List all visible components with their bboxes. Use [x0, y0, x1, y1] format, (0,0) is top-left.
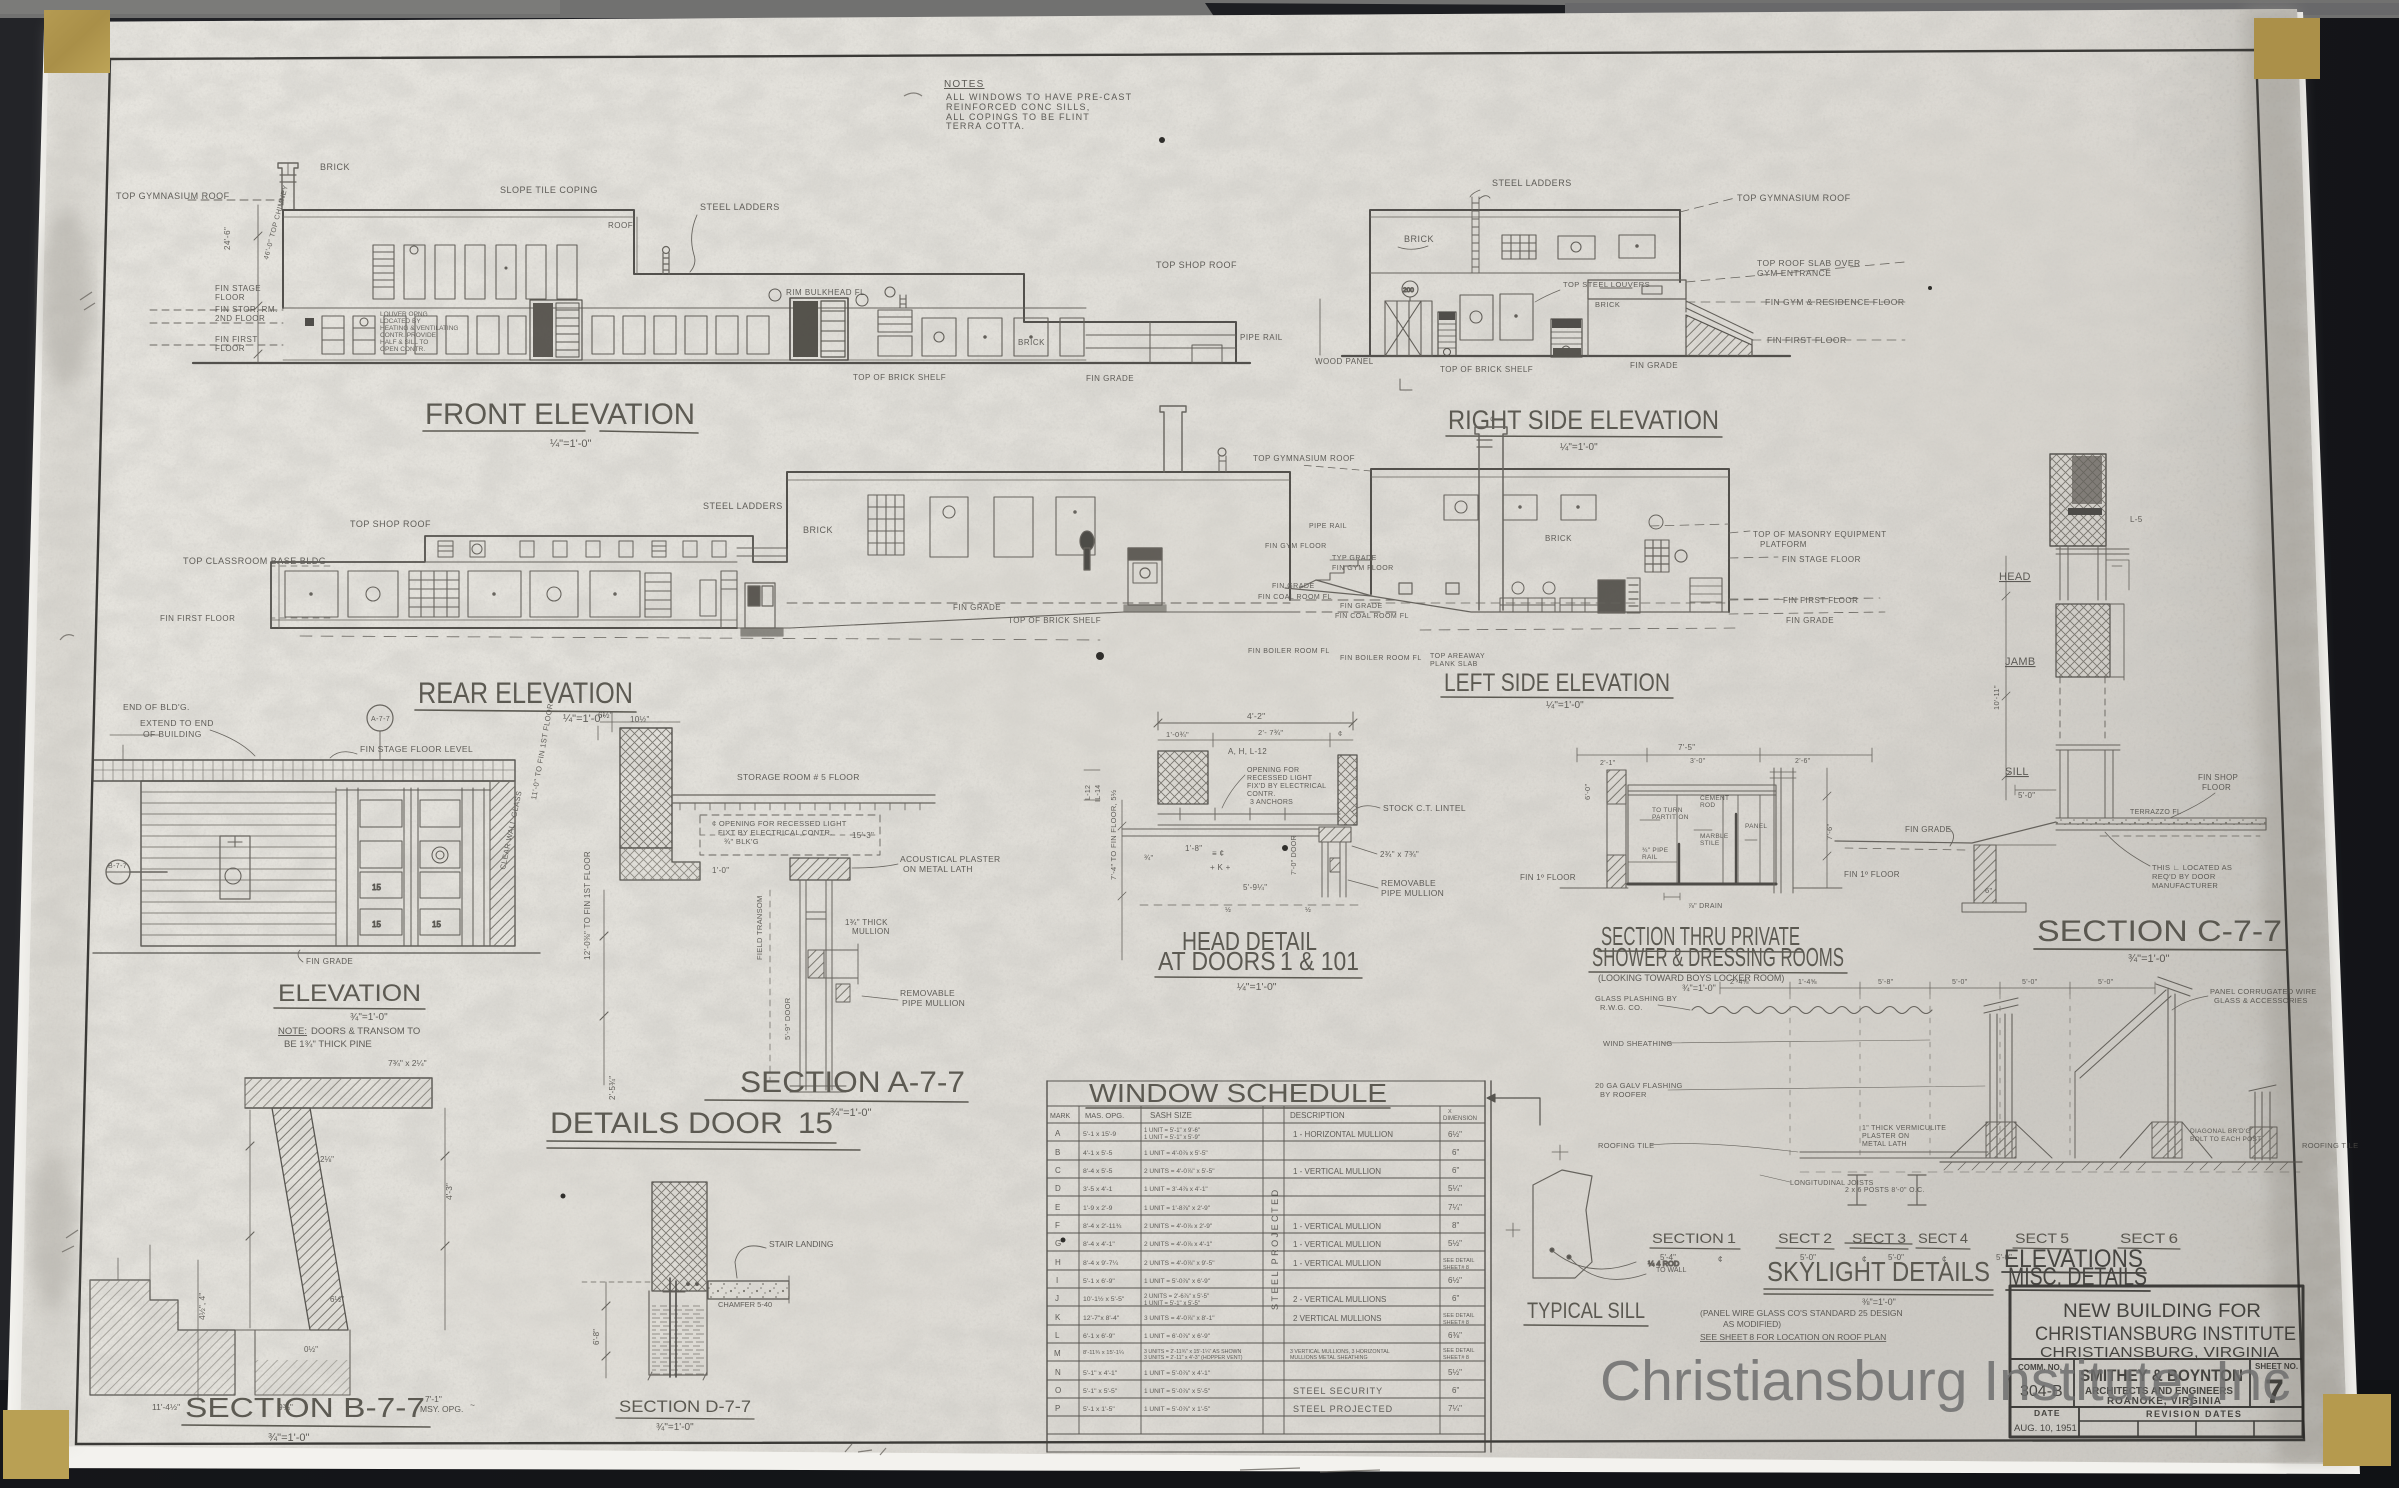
svg-text:SASH SIZE: SASH SIZE	[1150, 1111, 1192, 1120]
svg-text:ALL WINDOWS TO HAVE PRE-CAST: ALL WINDOWS TO HAVE PRE-CAST	[946, 92, 1132, 102]
svg-text:BRICK: BRICK	[803, 525, 833, 535]
svg-text:TOP GYMNASIUM ROOF: TOP GYMNASIUM ROOF	[116, 191, 230, 201]
svg-text:4½", 4": 4½", 4"	[197, 1293, 207, 1320]
svg-text:3 ANCHORS: 3 ANCHORS	[1250, 799, 1293, 806]
svg-text:L: L	[1055, 1331, 1060, 1340]
svg-text:6'-1 x 6'-9": 6'-1 x 6'-9"	[1083, 1333, 1115, 1340]
svg-text:5'-0": 5'-0"	[2018, 791, 2035, 800]
svg-text:1 - VERTICAL MULLION: 1 - VERTICAL MULLION	[1293, 1259, 1381, 1268]
svg-text:7¼": 7¼"	[1448, 1203, 1462, 1212]
svg-text:F: F	[1055, 1221, 1060, 1230]
svg-text:~: ~	[470, 1400, 475, 1410]
svg-text:200: 200	[1403, 287, 1414, 294]
svg-text:D: D	[1055, 1184, 1061, 1193]
svg-text:⅜"=1'-0": ⅜"=1'-0"	[1862, 1297, 1896, 1307]
svg-text:8'-4 x 2'-11¾: 8'-4 x 2'-11¾	[1083, 1223, 1122, 1230]
svg-text:6'-0": 6'-0"	[1583, 784, 1592, 800]
svg-text:LOCATED BY: LOCATED BY	[380, 318, 421, 325]
svg-text:FIN COAL ROOM FL: FIN COAL ROOM FL	[1335, 613, 1409, 620]
svg-text:SECT 4: SECT 4	[1918, 1230, 1968, 1246]
svg-text:2 x 6 POSTS 8'-0" O.C.: 2 x 6 POSTS 8'-0" O.C.	[1845, 1187, 1925, 1194]
svg-text:BRICK: BRICK	[320, 162, 350, 172]
svg-text:REQ'D BY DOOR: REQ'D BY DOOR	[2152, 872, 2216, 881]
svg-text:C: C	[1055, 1166, 1061, 1175]
svg-text:¾"=1'-0": ¾"=1'-0"	[1682, 983, 1716, 993]
svg-text:1 - VERTICAL MULLION: 1 - VERTICAL MULLION	[1293, 1222, 1381, 1231]
svg-text:¾" PIPE: ¾" PIPE	[1642, 847, 1669, 854]
svg-text:¾"=1'-0": ¾"=1'-0"	[350, 1012, 388, 1023]
svg-text:1'-4⅝: 1'-4⅝	[1798, 979, 1817, 986]
svg-text:6": 6"	[1452, 1294, 1459, 1303]
svg-text:8'-4 x 5'-5: 8'-4 x 5'-5	[1083, 1168, 1113, 1175]
svg-text:¾"=1'-0": ¾"=1'-0"	[656, 1422, 694, 1433]
svg-text:5½": 5½"	[1448, 1239, 1462, 1248]
svg-text:SECT 6: SECT 6	[2120, 1230, 2178, 1246]
svg-text:1 UNIT = 5'-0⅞" x 5'-5": 1 UNIT = 5'-0⅞" x 5'-5"	[1144, 1388, 1211, 1395]
svg-text:2¾" x 7¾": 2¾" x 7¾"	[1380, 850, 1419, 859]
svg-text:6": 6"	[1985, 886, 1992, 895]
svg-text:4'-1 x 5'-5: 4'-1 x 5'-5	[1083, 1150, 1113, 1157]
svg-text:2'-5¾": 2'-5¾"	[608, 1076, 617, 1100]
svg-text:12'-0⅜" TO FIN 1ST FLOOR: 12'-0⅜" TO FIN 1ST FLOOR	[583, 851, 592, 960]
svg-text:SEE DETAIL: SEE DETAIL	[1443, 1348, 1474, 1354]
svg-text:5'-9" DOOR: 5'-9" DOOR	[783, 997, 792, 1040]
svg-text:METAL LATH: METAL LATH	[1862, 1141, 1907, 1148]
svg-text:L-5: L-5	[2130, 515, 2143, 524]
svg-text:END OF BLD'G.: END OF BLD'G.	[123, 702, 190, 712]
svg-text:2 UNITS = 4'-0⅞" x 5'-5": 2 UNITS = 4'-0⅞" x 5'-5"	[1144, 1168, 1215, 1175]
svg-text:CONTR. PROVIDE: CONTR. PROVIDE	[380, 332, 437, 339]
svg-text:CHRISTIANSBURG INSTITUTE: CHRISTIANSBURG INSTITUTE	[2035, 1324, 2296, 1345]
svg-text:5'-1 x 15'-9: 5'-1 x 15'-9	[1083, 1131, 1116, 1138]
svg-text:FIN COAL ROOM FL: FIN COAL ROOM FL	[1258, 594, 1332, 601]
svg-text:¾"=1'-0": ¾"=1'-0"	[830, 1107, 872, 1119]
svg-text:RIGHT SIDE ELEVATION: RIGHT SIDE ELEVATION	[1448, 405, 1719, 435]
svg-text:TOP SHOP ROOF: TOP SHOP ROOF	[350, 519, 431, 529]
svg-text:FLOOR: FLOOR	[215, 344, 245, 353]
svg-text:STEEL SECURITY: STEEL SECURITY	[1293, 1386, 1383, 1396]
svg-text:TOP OF BRICK SHELF: TOP OF BRICK SHELF	[853, 373, 946, 382]
svg-text:TOP OF BRICK SHELF: TOP OF BRICK SHELF	[1440, 365, 1533, 374]
svg-text:8'-4 x 4'-1": 8'-4 x 4'-1"	[1083, 1241, 1115, 1248]
svg-text:BY ROOFER: BY ROOFER	[1600, 1090, 1647, 1099]
svg-text:BRICK: BRICK	[1018, 338, 1045, 347]
svg-text:PIPE RAIL: PIPE RAIL	[1309, 523, 1347, 530]
svg-text:¢: ¢	[1338, 729, 1342, 738]
svg-text:REMOVABLE: REMOVABLE	[900, 988, 955, 998]
svg-text:4'-2": 4'-2"	[1247, 711, 1265, 721]
svg-text:ON METAL LATH: ON METAL LATH	[903, 864, 973, 874]
svg-text:2 UNITS = 4'-0⅞ x 2'-9": 2 UNITS = 4'-0⅞ x 2'-9"	[1144, 1223, 1213, 1230]
svg-text:FIN STAGE: FIN STAGE	[215, 284, 261, 293]
svg-text:A: A	[1055, 1129, 1061, 1138]
svg-text:2 UNITS = 4'-0⅞ x 4'-1": 2 UNITS = 4'-0⅞ x 4'-1"	[1144, 1241, 1213, 1248]
svg-text:7'-6": 7'-6"	[1825, 824, 1834, 840]
svg-text:SHOWER & DRESSING ROOMS: SHOWER & DRESSING ROOMS	[1592, 942, 1844, 972]
svg-text:FLOOR: FLOOR	[215, 293, 245, 302]
svg-text:FIN FIRST FLOOR: FIN FIRST FLOOR	[160, 614, 235, 623]
svg-text:2ND FLOOR: 2ND FLOOR	[215, 314, 265, 323]
svg-text:AUG. 10, 1951: AUG. 10, 1951	[2014, 1423, 2077, 1434]
svg-text:STEEL LADDERS: STEEL LADDERS	[703, 501, 783, 511]
svg-text:5'-0": 5'-0"	[2098, 979, 2114, 986]
svg-text:P: P	[1055, 1404, 1060, 1413]
svg-text:STEEL PROJECTED: STEEL PROJECTED	[1293, 1404, 1393, 1414]
svg-text:M: M	[1054, 1349, 1061, 1358]
svg-text:5'-0": 5'-0"	[1952, 979, 1968, 986]
svg-text:5½": 5½"	[1448, 1368, 1462, 1377]
svg-text:TYPICAL SILL: TYPICAL SILL	[1527, 1298, 1645, 1323]
svg-text:BRICK: BRICK	[1404, 234, 1434, 244]
svg-text:6½": 6½"	[598, 711, 613, 720]
svg-text:FRONT ELEVATION: FRONT ELEVATION	[425, 398, 695, 431]
svg-text:CEMENT: CEMENT	[1700, 795, 1729, 802]
svg-text:FIN STAGE FLOOR LEVEL: FIN STAGE FLOOR LEVEL	[360, 744, 473, 754]
svg-text:7¾" x 2¼": 7¾" x 2¼"	[388, 1058, 427, 1068]
svg-text:REINFORCED CONC SILLS,: REINFORCED CONC SILLS,	[946, 102, 1090, 112]
svg-text:G: G	[1055, 1239, 1061, 1248]
svg-text:3'-5 x 4'-1: 3'-5 x 4'-1	[1083, 1186, 1113, 1193]
svg-text:SLOPE TILE COPING: SLOPE TILE COPING	[500, 185, 598, 195]
svg-text:1¾" THICK: 1¾" THICK	[845, 918, 888, 927]
svg-text:15'-3": 15'-3"	[852, 831, 874, 840]
svg-text:FIN GRADE: FIN GRADE	[1905, 825, 1951, 834]
svg-text:FIN 1º FLOOR: FIN 1º FLOOR	[1844, 870, 1900, 879]
svg-text:⅞" DRAIN: ⅞" DRAIN	[1688, 903, 1722, 910]
svg-text:SEE SHEET 8 FOR LOCATION ON R: SEE SHEET 8 FOR LOCATION ON ROOF PLAN	[1700, 1332, 1886, 1342]
svg-text:EXTEND TO END: EXTEND TO END	[140, 718, 214, 728]
svg-text:3 UNITS = 4'-0⅞" x 8'-1": 3 UNITS = 4'-0⅞" x 8'-1"	[1144, 1315, 1215, 1322]
svg-text:A, H, L-12: A, H, L-12	[1228, 747, 1267, 756]
svg-text:8'-11¾ x 15'-1¼: 8'-11¾ x 15'-1¼	[1083, 1350, 1124, 1356]
svg-text:1'-8": 1'-8"	[1185, 844, 1202, 853]
svg-text:WINDOW SCHEDULE: WINDOW SCHEDULE	[1089, 1078, 1387, 1108]
svg-text:2⅛": 2⅛"	[320, 1155, 334, 1164]
svg-text:SECT 2: SECT 2	[1778, 1230, 1832, 1246]
svg-text:1 UNIT = 5'-1" x 5'-5": 1 UNIT = 5'-1" x 5'-5"	[1144, 1301, 1200, 1307]
svg-text:10½": 10½"	[630, 715, 650, 724]
svg-text:ROOFING TILE: ROOFING TILE	[1598, 1141, 1654, 1150]
svg-text:MARK: MARK	[1050, 1113, 1071, 1120]
svg-text:MULLION: MULLION	[852, 927, 890, 936]
svg-text:2 UNITS = 4'-0⅞" x 9'-5": 2 UNITS = 4'-0⅞" x 9'-5"	[1144, 1260, 1215, 1267]
svg-text:TOP SHOP ROOF: TOP SHOP ROOF	[1156, 260, 1237, 270]
svg-text:TOP GYMNASIUM ROOF: TOP GYMNASIUM ROOF	[1737, 193, 1851, 203]
svg-text:SKYLIGHT DETAILS: SKYLIGHT DETAILS	[1767, 1256, 1990, 1287]
svg-text:1 - HORIZONTAL MULLION: 1 - HORIZONTAL MULLION	[1293, 1130, 1393, 1139]
svg-text:FIN GRADE: FIN GRADE	[1272, 583, 1315, 590]
svg-text:TO WALL: TO WALL	[1656, 1267, 1686, 1274]
svg-text:¼"=1'-0": ¼"=1'-0"	[1546, 699, 1584, 711]
svg-text:TOP STEEL LOUVERS: TOP STEEL LOUVERS	[1563, 280, 1650, 289]
svg-text:1'-0¾": 1'-0¾"	[1166, 730, 1189, 739]
svg-text:TOP GYMNASIUM ROOF: TOP GYMNASIUM ROOF	[1253, 454, 1355, 463]
svg-text:TERRA COTTA.: TERRA COTTA.	[946, 121, 1025, 131]
svg-text:FIN GYM FLOOR: FIN GYM FLOOR	[1332, 565, 1394, 572]
svg-text:REMOVABLE: REMOVABLE	[1381, 878, 1436, 888]
svg-text:WIND SHEATHING: WIND SHEATHING	[1603, 1039, 1672, 1048]
svg-text:5¼": 5¼"	[1448, 1184, 1462, 1193]
svg-text:¾" BLK'G: ¾" BLK'G	[724, 837, 759, 846]
svg-text:E: E	[1055, 1203, 1060, 1212]
svg-text:1 - VERTICAL MULLION: 1 - VERTICAL MULLION	[1293, 1240, 1381, 1249]
svg-text:1 UNIT = 6'-0⅞" x 6'-9": 1 UNIT = 6'-0⅞" x 6'-9"	[1144, 1333, 1211, 1340]
svg-text:8'-4 x 9'-7¼: 8'-4 x 9'-7¼	[1083, 1260, 1118, 1267]
svg-text:REAR ELEVATION: REAR ELEVATION	[418, 677, 633, 710]
svg-text:STEEL PROJECTED: STEEL PROJECTED	[1270, 1187, 1280, 1310]
svg-text:2'- 7¾": 2'- 7¾"	[1258, 728, 1283, 737]
svg-text:1'-0": 1'-0"	[712, 866, 729, 875]
svg-text:SECTION C-7-7: SECTION C-7-7	[2037, 915, 2282, 948]
svg-text:AT DOORS 1 & 101: AT DOORS 1 & 101	[1158, 946, 1359, 976]
svg-text:20 GA GALV FLASHING: 20 GA GALV FLASHING	[1595, 1081, 1683, 1090]
svg-text:6'-8": 6'-8"	[592, 1329, 601, 1345]
svg-text:RAIL: RAIL	[1642, 854, 1658, 861]
svg-text:5'-0": 5'-0"	[2022, 979, 2038, 986]
svg-text:ROOF: ROOF	[608, 221, 633, 230]
svg-text:GLASS & ACCESSORIES: GLASS & ACCESSORIES	[2214, 996, 2308, 1005]
svg-text:5'-1" x 4'-1": 5'-1" x 4'-1"	[1083, 1370, 1118, 1377]
svg-text:STAIR LANDING: STAIR LANDING	[769, 1239, 834, 1249]
svg-text:1 UNIT = 5'-1" x 5'-9": 1 UNIT = 5'-1" x 5'-9"	[1144, 1135, 1200, 1141]
svg-text:7'-4" TO FIN FLOOR, 5½: 7'-4" TO FIN FLOOR, 5½	[1109, 789, 1118, 880]
svg-text:DIMENSION: DIMENSION	[1443, 1116, 1477, 1122]
svg-text:PIPE RAIL: PIPE RAIL	[1240, 333, 1283, 342]
svg-text:FIN GRADE: FIN GRADE	[306, 957, 353, 966]
svg-text:BRICK: BRICK	[1595, 300, 1620, 309]
svg-text:STEEL LADDERS: STEEL LADDERS	[1492, 178, 1572, 188]
svg-text:FIN GYM FLOOR: FIN GYM FLOOR	[1265, 543, 1327, 550]
svg-text:SECTION A-7-7: SECTION A-7-7	[740, 1066, 965, 1099]
svg-text:STOCK C.T. LINTEL: STOCK C.T. LINTEL	[1383, 803, 1466, 813]
svg-text:IL-14: IL-14	[1095, 785, 1102, 802]
svg-text:FIXT BY ELECTRICAL CONTR.: FIXT BY ELECTRICAL CONTR.	[718, 828, 832, 837]
svg-text:R.W.G. CO.: R.W.G. CO.	[1600, 1003, 1643, 1012]
svg-text:FIN FIRST FLOOR: FIN FIRST FLOOR	[1783, 596, 1858, 605]
svg-text:24'-6": 24'-6"	[223, 227, 232, 250]
svg-text:HEATING & VENTILATING: HEATING & VENTILATING	[380, 325, 459, 332]
svg-text:THIS ∟ LOCATED AS: THIS ∟ LOCATED AS	[2152, 863, 2232, 872]
svg-text:CONTR.: CONTR.	[1247, 791, 1276, 798]
svg-text:TERRAZZO FL: TERRAZZO FL	[2130, 809, 2181, 816]
svg-text:NOTES: NOTES	[944, 79, 984, 90]
svg-text:DESCRIPTION: DESCRIPTION	[1290, 1111, 1345, 1120]
svg-text:15: 15	[372, 883, 381, 892]
svg-text:OPENING FOR: OPENING FOR	[1247, 767, 1299, 774]
svg-text:FIN GRADE: FIN GRADE	[1630, 361, 1678, 370]
svg-text:STORAGE ROOM # 5 FLOOR: STORAGE ROOM # 5 FLOOR	[737, 772, 860, 782]
svg-text:3 UNITS = 2'-11" x 4'-3" (HOPP: 3 UNITS = 2'-11" x 4'-3" (HOPPER VENT)	[1144, 1355, 1243, 1361]
svg-text:LONGITUDINAL JOISTS: LONGITUDINAL JOISTS	[1790, 1180, 1874, 1187]
svg-text:+ K +: + K +	[1210, 863, 1231, 872]
svg-text:STILE: STILE	[1700, 840, 1720, 847]
svg-text:5'-8": 5'-8"	[1878, 979, 1894, 986]
svg-text:6½": 6½"	[330, 1295, 344, 1304]
svg-text:FIN GRADE: FIN GRADE	[1786, 616, 1834, 625]
svg-text:FIN SHOP: FIN SHOP	[2198, 773, 2238, 782]
svg-text:PANEL CORRUGATED WIRE: PANEL CORRUGATED WIRE	[2210, 987, 2317, 996]
svg-text:TO TURN: TO TURN	[1652, 807, 1683, 814]
svg-text:5'-9¼": 5'-9¼"	[1243, 883, 1267, 892]
svg-text:WOOD PANEL: WOOD PANEL	[1315, 357, 1374, 366]
svg-text:¾"=1'-0": ¾"=1'-0"	[268, 1432, 310, 1444]
svg-text:1 UNIT = 5'-0⅞" x 6'-9": 1 UNIT = 5'-0⅞" x 6'-9"	[1144, 1278, 1211, 1285]
svg-text:(LOOKING TOWARD BOYS LOCKER RO: (LOOKING TOWARD BOYS LOCKER ROOM)	[1598, 973, 1784, 983]
svg-text:FIN STOR. RM.: FIN STOR. RM.	[215, 305, 278, 314]
svg-text:PLATFORM: PLATFORM	[1760, 540, 1807, 549]
svg-text:2 VERTICAL MULLIONS: 2 VERTICAL MULLIONS	[1293, 1314, 1381, 1323]
svg-text:4'-3": 4'-3"	[444, 1183, 454, 1200]
svg-text:SEE DETAIL: SEE DETAIL	[1443, 1313, 1474, 1319]
svg-text:OF BUILDING: OF BUILDING	[143, 729, 202, 739]
svg-text:15: 15	[372, 920, 381, 929]
svg-text:BE 1¾" THICK PINE: BE 1¾" THICK PINE	[284, 1039, 372, 1050]
svg-text:SECTION D-7-7: SECTION D-7-7	[619, 1397, 751, 1416]
svg-text:10'-11": 10'-11"	[1992, 685, 2001, 710]
svg-text:PIPE MULLION: PIPE MULLION	[1381, 888, 1444, 898]
svg-text:6½": 6½"	[1448, 1276, 1462, 1285]
svg-text:LEFT SIDE ELEVATION: LEFT SIDE ELEVATION	[1444, 669, 1670, 697]
svg-text:PLASTER ON: PLASTER ON	[1862, 1133, 1909, 1140]
svg-text:7'-0" DOOR: 7'-0" DOOR	[1291, 835, 1298, 875]
svg-text:PANEL: PANEL	[1745, 823, 1767, 830]
svg-text:6⅜": 6⅜"	[1448, 1331, 1462, 1340]
svg-text:AS MODIFIED): AS MODIFIED)	[1723, 1319, 1781, 1329]
svg-text:7'-5": 7'-5"	[1678, 743, 1695, 752]
svg-text:1 UNIT = 3'-4⅞ x 4'-1": 1 UNIT = 3'-4⅞ x 4'-1"	[1144, 1186, 1208, 1193]
svg-text:FIX'D BY ELECTRICAL: FIX'D BY ELECTRICAL	[1247, 783, 1326, 790]
svg-text:SECT 5: SECT 5	[2015, 1230, 2069, 1246]
svg-text:0½": 0½"	[304, 1345, 318, 1354]
svg-text:5'-1" x 5'-5": 5'-1" x 5'-5"	[1083, 1388, 1118, 1395]
svg-text:¢ OPENING FOR RECESSED LIGHT: ¢ OPENING FOR RECESSED LIGHT	[712, 819, 847, 828]
svg-text:≡ ¢: ≡ ¢	[1212, 849, 1224, 858]
svg-text:15: 15	[432, 920, 441, 929]
svg-text:MAS. OPG.: MAS. OPG.	[1085, 1111, 1124, 1120]
svg-text:SILL: SILL	[2005, 766, 2029, 778]
svg-text:MULLIONS METAL SHEATHING: MULLIONS METAL SHEATHING	[1290, 1355, 1368, 1361]
svg-text:11'-4½": 11'-4½"	[152, 1402, 180, 1412]
svg-text:MSY. OPG.: MSY. OPG.	[420, 1404, 463, 1414]
svg-text:6½": 6½"	[1448, 1130, 1462, 1139]
svg-text:J: J	[1055, 1294, 1059, 1303]
svg-text:SECTION B-7-7: SECTION B-7-7	[185, 1392, 425, 1423]
svg-text:HALF & SILL TO: HALF & SILL TO	[380, 339, 428, 346]
svg-text:NEW BUILDING FOR: NEW BUILDING FOR	[2063, 1301, 2261, 1322]
svg-text:5'-1 x 1'-5": 5'-1 x 1'-5"	[1083, 1406, 1115, 1413]
svg-text:¢: ¢	[1718, 1255, 1722, 1264]
svg-text:OPEN CONTR.: OPEN CONTR.	[380, 346, 425, 353]
svg-text:2'-1": 2'-1"	[1600, 760, 1616, 767]
svg-text:FIN 1º FLOOR: FIN 1º FLOOR	[1520, 873, 1576, 882]
svg-text:PLANK SLAB: PLANK SLAB	[1430, 661, 1478, 668]
svg-text:FIN GRADE: FIN GRADE	[1340, 603, 1383, 610]
svg-text:ACOUSTICAL PLASTER: ACOUSTICAL PLASTER	[900, 854, 1001, 864]
svg-text:FIN STAGE FLOOR: FIN STAGE FLOOR	[1782, 555, 1861, 564]
svg-text:PIPE MULLION: PIPE MULLION	[902, 998, 965, 1008]
svg-text:1 - VERTICAL MULLION: 1 - VERTICAL MULLION	[1293, 1167, 1381, 1176]
svg-text:TOP OF BRICK SHELF: TOP OF BRICK SHELF	[1008, 616, 1101, 625]
svg-text:RIM BULKHEAD FL: RIM BULKHEAD FL	[786, 288, 865, 297]
svg-text:FIN BOILER ROOM FL: FIN BOILER ROOM FL	[1340, 655, 1422, 662]
svg-text:BOLT TO EACH POST: BOLT TO EACH POST	[2190, 1136, 2261, 1143]
svg-text:FLOOR: FLOOR	[2202, 783, 2231, 792]
svg-text:1 UNIT = 5'-0⅞" x 1'-5": 1 UNIT = 5'-0⅞" x 1'-5"	[1144, 1406, 1211, 1413]
svg-text:N: N	[1055, 1368, 1061, 1377]
svg-text:1 UNIT = 4'-0⅞ x 5'-5": 1 UNIT = 4'-0⅞ x 5'-5"	[1144, 1150, 1208, 1157]
svg-text:TOP CLASSROOM BASE BLDG: TOP CLASSROOM BASE BLDG	[183, 556, 326, 566]
svg-text:TOP OF MASONRY EQUIPMENT: TOP OF MASONRY EQUIPMENT	[1753, 530, 1887, 539]
svg-text:O: O	[1055, 1386, 1061, 1395]
svg-text:CHAMFER 5-40: CHAMFER 5-40	[718, 1300, 772, 1309]
svg-text:¼"=1'-0": ¼"=1'-0"	[1237, 981, 1277, 993]
svg-text:½: ½	[1305, 906, 1311, 914]
svg-text:TOP AREAWAY: TOP AREAWAY	[1430, 653, 1485, 660]
svg-text:H: H	[1055, 1258, 1061, 1267]
svg-text:10'-1½ x 5'-5": 10'-1½ x 5'-5"	[1083, 1295, 1125, 1303]
svg-text:LOUVER OPNG: LOUVER OPNG	[380, 311, 428, 318]
svg-text:2'-4⅝: 2'-4⅝	[1730, 979, 1749, 986]
svg-text:5'-4": 5'-4"	[1660, 1253, 1676, 1262]
svg-text:ROOFING TILE: ROOFING TILE	[2302, 1141, 2358, 1150]
svg-text:FIN BOILER ROOM FL: FIN BOILER ROOM FL	[1248, 648, 1330, 655]
svg-text:PARTITION: PARTITION	[1652, 814, 1689, 821]
svg-text:¼"=1'-0": ¼"=1'-0"	[550, 438, 592, 450]
svg-text:RECESSED LIGHT: RECESSED LIGHT	[1247, 775, 1313, 782]
svg-text:A-7-7: A-7-7	[371, 716, 390, 723]
svg-text:MARBLE: MARBLE	[1700, 833, 1729, 840]
svg-text:2 - VERTICAL MULLIONS: 2 - VERTICAL MULLIONS	[1293, 1295, 1386, 1304]
svg-text:6": 6"	[1452, 1148, 1459, 1157]
svg-text:1 UNIT = 1'-8⅞" x 2'-9": 1 UNIT = 1'-8⅞" x 2'-9"	[1144, 1205, 1211, 1212]
svg-text:6": 6"	[1452, 1386, 1459, 1395]
svg-text:DIAGONAL BR'D'G: DIAGONAL BR'D'G	[2190, 1128, 2251, 1135]
svg-text:L-12: L-12	[1085, 785, 1092, 800]
svg-text:1 UNIT = 5'-0⅞" x 4'-1": 1 UNIT = 5'-0⅞" x 4'-1"	[1144, 1370, 1211, 1377]
svg-text:¾"=1'-0": ¾"=1'-0"	[2128, 953, 2170, 965]
svg-text:TOP ROOF SLAB OVER: TOP ROOF SLAB OVER	[1757, 258, 1861, 268]
svg-text:¢: ¢	[1490, 415, 1495, 424]
svg-text:STEEL LADDERS: STEEL LADDERS	[700, 202, 780, 212]
svg-text:I: I	[1056, 1276, 1058, 1285]
svg-text:1 UNIT = 5'-1" x 9'-6": 1 UNIT = 5'-1" x 9'-6"	[1144, 1128, 1200, 1134]
svg-text:ELEVATION: ELEVATION	[278, 980, 421, 1007]
svg-text:JAMB: JAMB	[2005, 656, 2036, 668]
svg-text:(PANEL WIRE GLASS CO'S STANDAR: (PANEL WIRE GLASS CO'S STANDARD 25 DESIG…	[1700, 1308, 1903, 1318]
svg-text:2 UNITS = 2'-6⅞" x 5'-5": 2 UNITS = 2'-6⅞" x 5'-5"	[1144, 1294, 1209, 1300]
svg-text:1'-9 x 2'-9: 1'-9 x 2'-9	[1083, 1205, 1113, 1212]
svg-text:½: ½	[1225, 906, 1231, 914]
svg-text:FIELD TRANSOM: FIELD TRANSOM	[755, 895, 764, 960]
svg-text:¼"=1'-0": ¼"=1'-0"	[1560, 441, 1598, 453]
svg-text:¾": ¾"	[1144, 853, 1154, 862]
svg-text:NOTE:: NOTE:	[278, 1026, 307, 1037]
svg-text:7'-1": 7'-1"	[425, 1394, 442, 1404]
svg-text:B-7-7: B-7-7	[108, 863, 127, 870]
svg-text:DOORS & TRANSOM TO: DOORS & TRANSOM TO	[311, 1026, 420, 1037]
svg-text:B: B	[1055, 1148, 1060, 1157]
svg-text:BRICK: BRICK	[1545, 534, 1572, 543]
svg-text:12'-7"x 8'-4": 12'-7"x 8'-4"	[1083, 1315, 1120, 1322]
svg-text:SECTION 1: SECTION 1	[1652, 1230, 1736, 1246]
svg-text:SEE DETAIL: SEE DETAIL	[1443, 1258, 1474, 1264]
svg-text:SHEET# 8: SHEET# 8	[1443, 1265, 1469, 1271]
svg-text:2'-6": 2'-6"	[1795, 758, 1811, 765]
svg-text:HEAD: HEAD	[1999, 571, 2031, 583]
svg-text:SHEET# 8: SHEET# 8	[1443, 1355, 1469, 1361]
svg-text:1" THICK VERMICULITE: 1" THICK VERMICULITE	[1862, 1125, 1946, 1132]
svg-text:X: X	[1448, 1109, 1452, 1115]
